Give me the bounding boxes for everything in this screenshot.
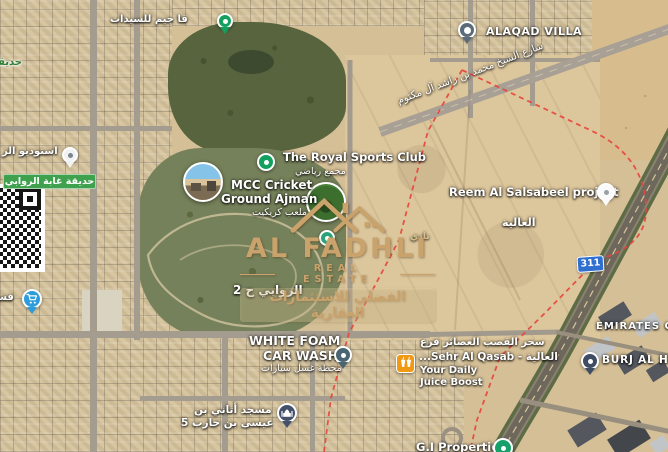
- grocery-cart-pin[interactable]: [22, 289, 42, 309]
- photo-buildings: [191, 183, 201, 191]
- route-311-badge: 311: [576, 255, 604, 273]
- juice-shop-label-4: Juice Boost: [420, 377, 483, 388]
- al-fadhli-watermark: AL FADHLI REAL ESTATE الفضلي للاستثمارات…: [240, 190, 435, 322]
- garden-banner[interactable]: حديقة غابة الروابي: [3, 174, 96, 189]
- watermark-arabic: الفضلي للاستثمارات العقارية: [240, 288, 435, 322]
- juice-shop-label-3: Your Daily: [420, 365, 477, 376]
- reem-project-label[interactable]: Reem Al Salsabeel project: [449, 185, 619, 199]
- emirates-label: EMIRATES C: [596, 321, 668, 332]
- cart-icon: [26, 293, 38, 305]
- royal-sports-club-label[interactable]: The Royal Sports Club: [283, 150, 426, 164]
- carwash-label-1[interactable]: WHITE FOAM: [249, 333, 340, 348]
- watermark-tagline-row: REAL ESTATE: [240, 263, 435, 285]
- alaqad-villa-label[interactable]: ALAQAD VILLA: [486, 25, 582, 38]
- tagline-rule: [240, 274, 275, 275]
- carwash-label-2[interactable]: CAR WASH: [263, 348, 338, 363]
- gi-properties-pin[interactable]: [493, 438, 513, 452]
- satellite-map[interactable]: AL FADHLI REAL ESTATE الفضلي للاستثمارات…: [0, 0, 668, 452]
- qr-code-icon: [0, 184, 45, 272]
- studio-pin[interactable]: [62, 147, 78, 163]
- burj-pin[interactable]: [581, 352, 599, 370]
- alaqad-villa-pin[interactable]: [458, 21, 476, 39]
- photo-buildings: [207, 181, 216, 191]
- reem-project-pin[interactable]: [597, 183, 615, 201]
- carwash-sublabel: محطة غسل سيارات: [261, 363, 342, 374]
- mosque-icon: [281, 408, 293, 418]
- juice-cups-icon[interactable]: [396, 354, 415, 373]
- street-photo-circle[interactable]: [183, 162, 223, 202]
- watermark-tagline: REAL ESTATE: [281, 263, 395, 285]
- park-label-fragment: حديقة: [0, 57, 22, 68]
- mosque-label-1[interactable]: مسجد أتاني بن: [194, 404, 272, 416]
- grocery-label-fragment: فستق: [0, 292, 14, 303]
- ladies-gym-pin[interactable]: [217, 13, 233, 29]
- carwash-pin[interactable]: [334, 346, 352, 364]
- royal-sports-club-pin[interactable]: [257, 153, 275, 171]
- mosque-pin[interactable]: [277, 403, 297, 423]
- watermark-brand: AL FADHLI: [240, 236, 435, 262]
- juice-shop-label-en[interactable]: ...Sehr Al Qasab - العالية: [419, 351, 558, 363]
- burj-label[interactable]: BURJ AL HA: [602, 354, 668, 366]
- tagline-rule: [400, 274, 435, 275]
- area-label-alia: العالية: [502, 216, 536, 229]
- studio-label[interactable]: استوديو الر: [2, 146, 58, 157]
- ladies-gym-label[interactable]: قا جيم للسيدات: [110, 14, 188, 25]
- royal-sports-club-sublabel: مجمع رياضي: [295, 166, 346, 177]
- juice-shop-label-ar[interactable]: سحر القصب العصائر فرع: [420, 337, 545, 348]
- roofline-logo-icon: [283, 190, 393, 236]
- mosque-label-2[interactable]: عيسى بن حارب 5: [181, 417, 274, 429]
